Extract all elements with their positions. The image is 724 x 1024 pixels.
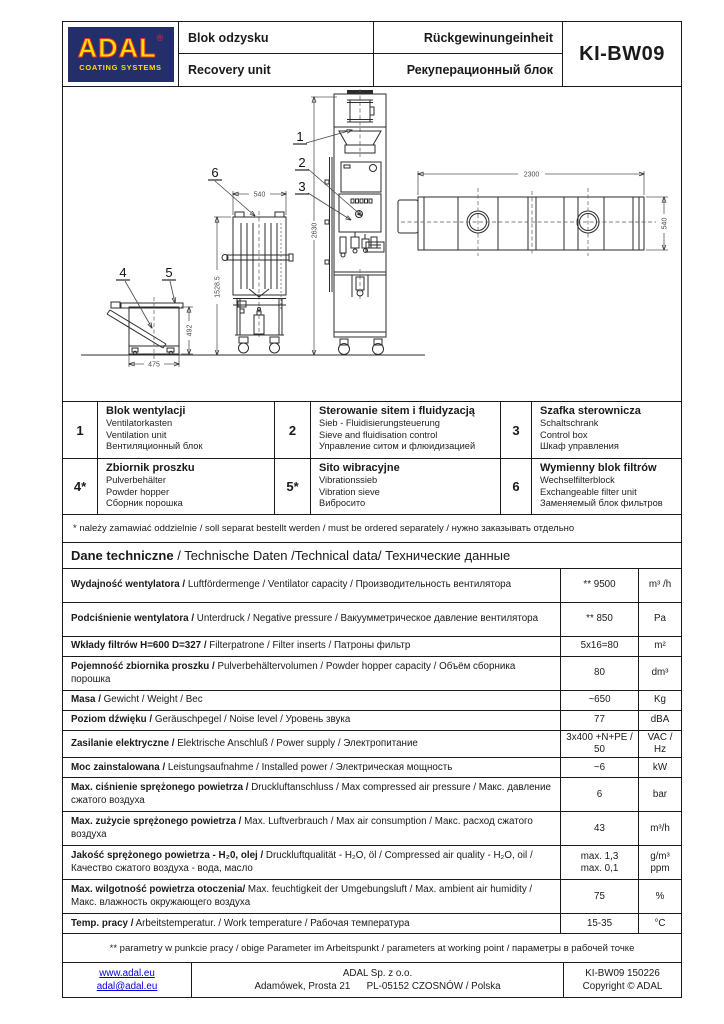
dim-hopper-width: 475 [148, 362, 160, 369]
tech-unit: °C [638, 914, 681, 933]
footer: www.adal.eu adal@adal.eu ADAL Sp. z o.o.… [63, 962, 681, 997]
adal-logo: ADAL ® COATING SYSTEMS [63, 22, 179, 86]
tech-unit: Pa [638, 603, 681, 636]
document-frame: ADAL ® COATING SYSTEMS Blok odzysku Rück… [62, 21, 682, 998]
dim-unit-height: 2630 [312, 223, 319, 239]
working-point-note: ** parametry w punkcie pracy / obige Par… [63, 933, 681, 962]
company-street: Adamówek, Prosta 21 [254, 981, 350, 992]
part-number: 4* [63, 458, 97, 514]
tech-value: max. 1,3 max. 0,1 [560, 846, 638, 879]
tech-unit: VAC / Hz [638, 731, 681, 757]
tech-row-negative-pressure: Podciśnienie wentylatora / Unterdruck / … [63, 602, 681, 636]
tech-value: 5x16=80 [560, 637, 638, 656]
technical-drawing-svg: 475 492 4 5 [63, 87, 680, 401]
tech-unit: kW [638, 758, 681, 777]
product-name-de: Rückgewinungeinheit [373, 22, 562, 54]
tech-value: ** 9500 [560, 569, 638, 602]
tech-unit: bar [638, 778, 681, 811]
tech-value: ** 850 [560, 603, 638, 636]
adal-logo-box: ADAL ® COATING SYSTEMS [68, 27, 174, 82]
part-cell-4: Zbiornik proszku Pulverbehälter Powder h… [97, 458, 274, 514]
part-number: 5* [274, 458, 310, 514]
adal-logo-tagline: COATING SYSTEMS [79, 64, 161, 72]
product-name-ru: Рекуперационный блок [373, 54, 562, 86]
recovery-unit-front-view: 2630 1 2 3 [293, 89, 386, 355]
callout-1: 1 [296, 129, 303, 144]
part-cell-1: Blok wentylacji Ventilatorkasten Ventila… [97, 402, 274, 458]
tech-value: 15-35 [560, 914, 638, 933]
dim-filter-width: 540 [254, 192, 266, 199]
part-cell-2: Sterowanie sitem i fluidyzacją Sieb - Fl… [310, 402, 500, 458]
tech-row-hopper-capacity: Pojemność zbiornika proszku / Pulverbehä… [63, 656, 681, 690]
copyright: Copyright © ADAL [583, 980, 663, 993]
tech-data-heading: Dane techniczne / Technische Daten /Tech… [63, 542, 681, 568]
tech-value: 77 [560, 711, 638, 730]
tech-value: 6 [560, 778, 638, 811]
tech-unit: Kg [638, 691, 681, 710]
tech-unit: dm³ [638, 657, 681, 690]
adal-logo-wordmark: ADAL [78, 36, 157, 62]
tech-value: ~650 [560, 691, 638, 710]
tech-row-ambient-humidity: Max. wilgotność powietrza otoczenia/ Max… [63, 879, 681, 913]
company-name: ADAL Sp. z o.o. [343, 967, 412, 980]
registered-trademark-icon: ® [157, 34, 164, 43]
header: ADAL ® COATING SYSTEMS Blok odzysku Rück… [63, 22, 681, 86]
tech-row-weight: Masa / Gewicht / Weight / Вес ~650 Kg [63, 690, 681, 710]
datasheet-page: { "header": { "logo": { "brand": "ADAL",… [0, 0, 724, 1024]
product-name-pl: Blok odzysku [179, 22, 373, 54]
footer-company: ADAL Sp. z o.o. Adamówek, Prosta 21 PL-0… [191, 963, 563, 997]
tech-unit: m³ /h [638, 569, 681, 602]
tech-value: 80 [560, 657, 638, 690]
order-note: * należy zamawiać oddzielnie / soll sepa… [63, 514, 681, 542]
tech-unit: dBA [638, 711, 681, 730]
dim-top-depth: 540 [662, 218, 669, 230]
tech-value: 3x400 +N+PE / 50 [560, 731, 638, 757]
tech-row-noise-level: Poziom dźwięku / Geräuschpegel / Noise l… [63, 710, 681, 730]
part-cell-5: Sito wibracyjne Vibrationssieb Vibration… [310, 458, 500, 514]
recovery-unit-top-view: 2300 540 [398, 171, 669, 256]
tech-row-air-quality: Jakość sprężonego powietrza - H₂0, olej … [63, 845, 681, 879]
part-cell-3: Szafka sterownicza Schaltschrank Control… [531, 402, 681, 458]
tech-unit: g/m³ ppm [638, 846, 681, 879]
tech-unit: m³/h [638, 812, 681, 845]
tech-value: ~6 [560, 758, 638, 777]
part-number: 6 [500, 458, 531, 514]
tech-row-work-temperature: Temp. pracy / Arbeitstemperatur. / Work … [63, 913, 681, 933]
callout-2: 2 [298, 155, 305, 170]
tech-row-installed-power: Moc zainstalowana / Leistungsaufnahme / … [63, 757, 681, 777]
tech-row-ventilator-capacity: Wydajność wentylatora / Luftfördermenge … [63, 568, 681, 602]
company-city: PL-05152 CZOSNÓW / Polska [367, 981, 501, 992]
dim-filter-height: 1528.5 [215, 276, 222, 298]
model-number: KI-BW09 [562, 22, 681, 86]
part-cell-6: Wymienny blok filtrów Wechselfilterblock… [531, 458, 681, 514]
filter-unit-view: 540 1528.5 6 [208, 165, 293, 355]
powder-hopper-view: 475 492 4 5 [107, 265, 194, 369]
dim-top-length: 2300 [524, 172, 540, 179]
part-number: 3 [500, 402, 531, 458]
tech-value: 75 [560, 880, 638, 913]
callout-6: 6 [211, 165, 218, 180]
footer-doc-info: KI-BW09 150226 Copyright © ADAL [563, 963, 681, 997]
parts-legend: 1 Blok wentylacji Ventilatorkasten Venti… [63, 401, 681, 514]
tech-row-power-supply: Zasilanie elektryczne / Elektrische Ansc… [63, 730, 681, 757]
product-name-en: Recovery unit [179, 54, 373, 86]
email-link[interactable]: adal@adal.eu [97, 980, 158, 993]
part-number: 1 [63, 402, 97, 458]
tech-unit: m² [638, 637, 681, 656]
tech-row-filter-inserts: Wkłady filtrów H=600 D=327 / Filterpatro… [63, 636, 681, 656]
part-number: 2 [274, 402, 310, 458]
callout-4: 4 [119, 265, 126, 280]
website-link[interactable]: www.adal.eu [99, 967, 155, 980]
tech-row-max-air-consumption: Max. zużycie sprężonego powietrza / Max.… [63, 811, 681, 845]
dim-hopper-height: 492 [187, 325, 194, 337]
callout-3: 3 [298, 179, 305, 194]
callout-5: 5 [165, 265, 172, 280]
tech-value: 43 [560, 812, 638, 845]
technical-drawing: 475 492 4 5 [63, 86, 681, 401]
tech-unit: % [638, 880, 681, 913]
doc-code: KI-BW09 150226 [585, 967, 660, 980]
tech-row-max-air-pressure: Max. ciśnienie sprężonego powietrza / Dr… [63, 777, 681, 811]
footer-links: www.adal.eu adal@adal.eu [63, 963, 191, 997]
